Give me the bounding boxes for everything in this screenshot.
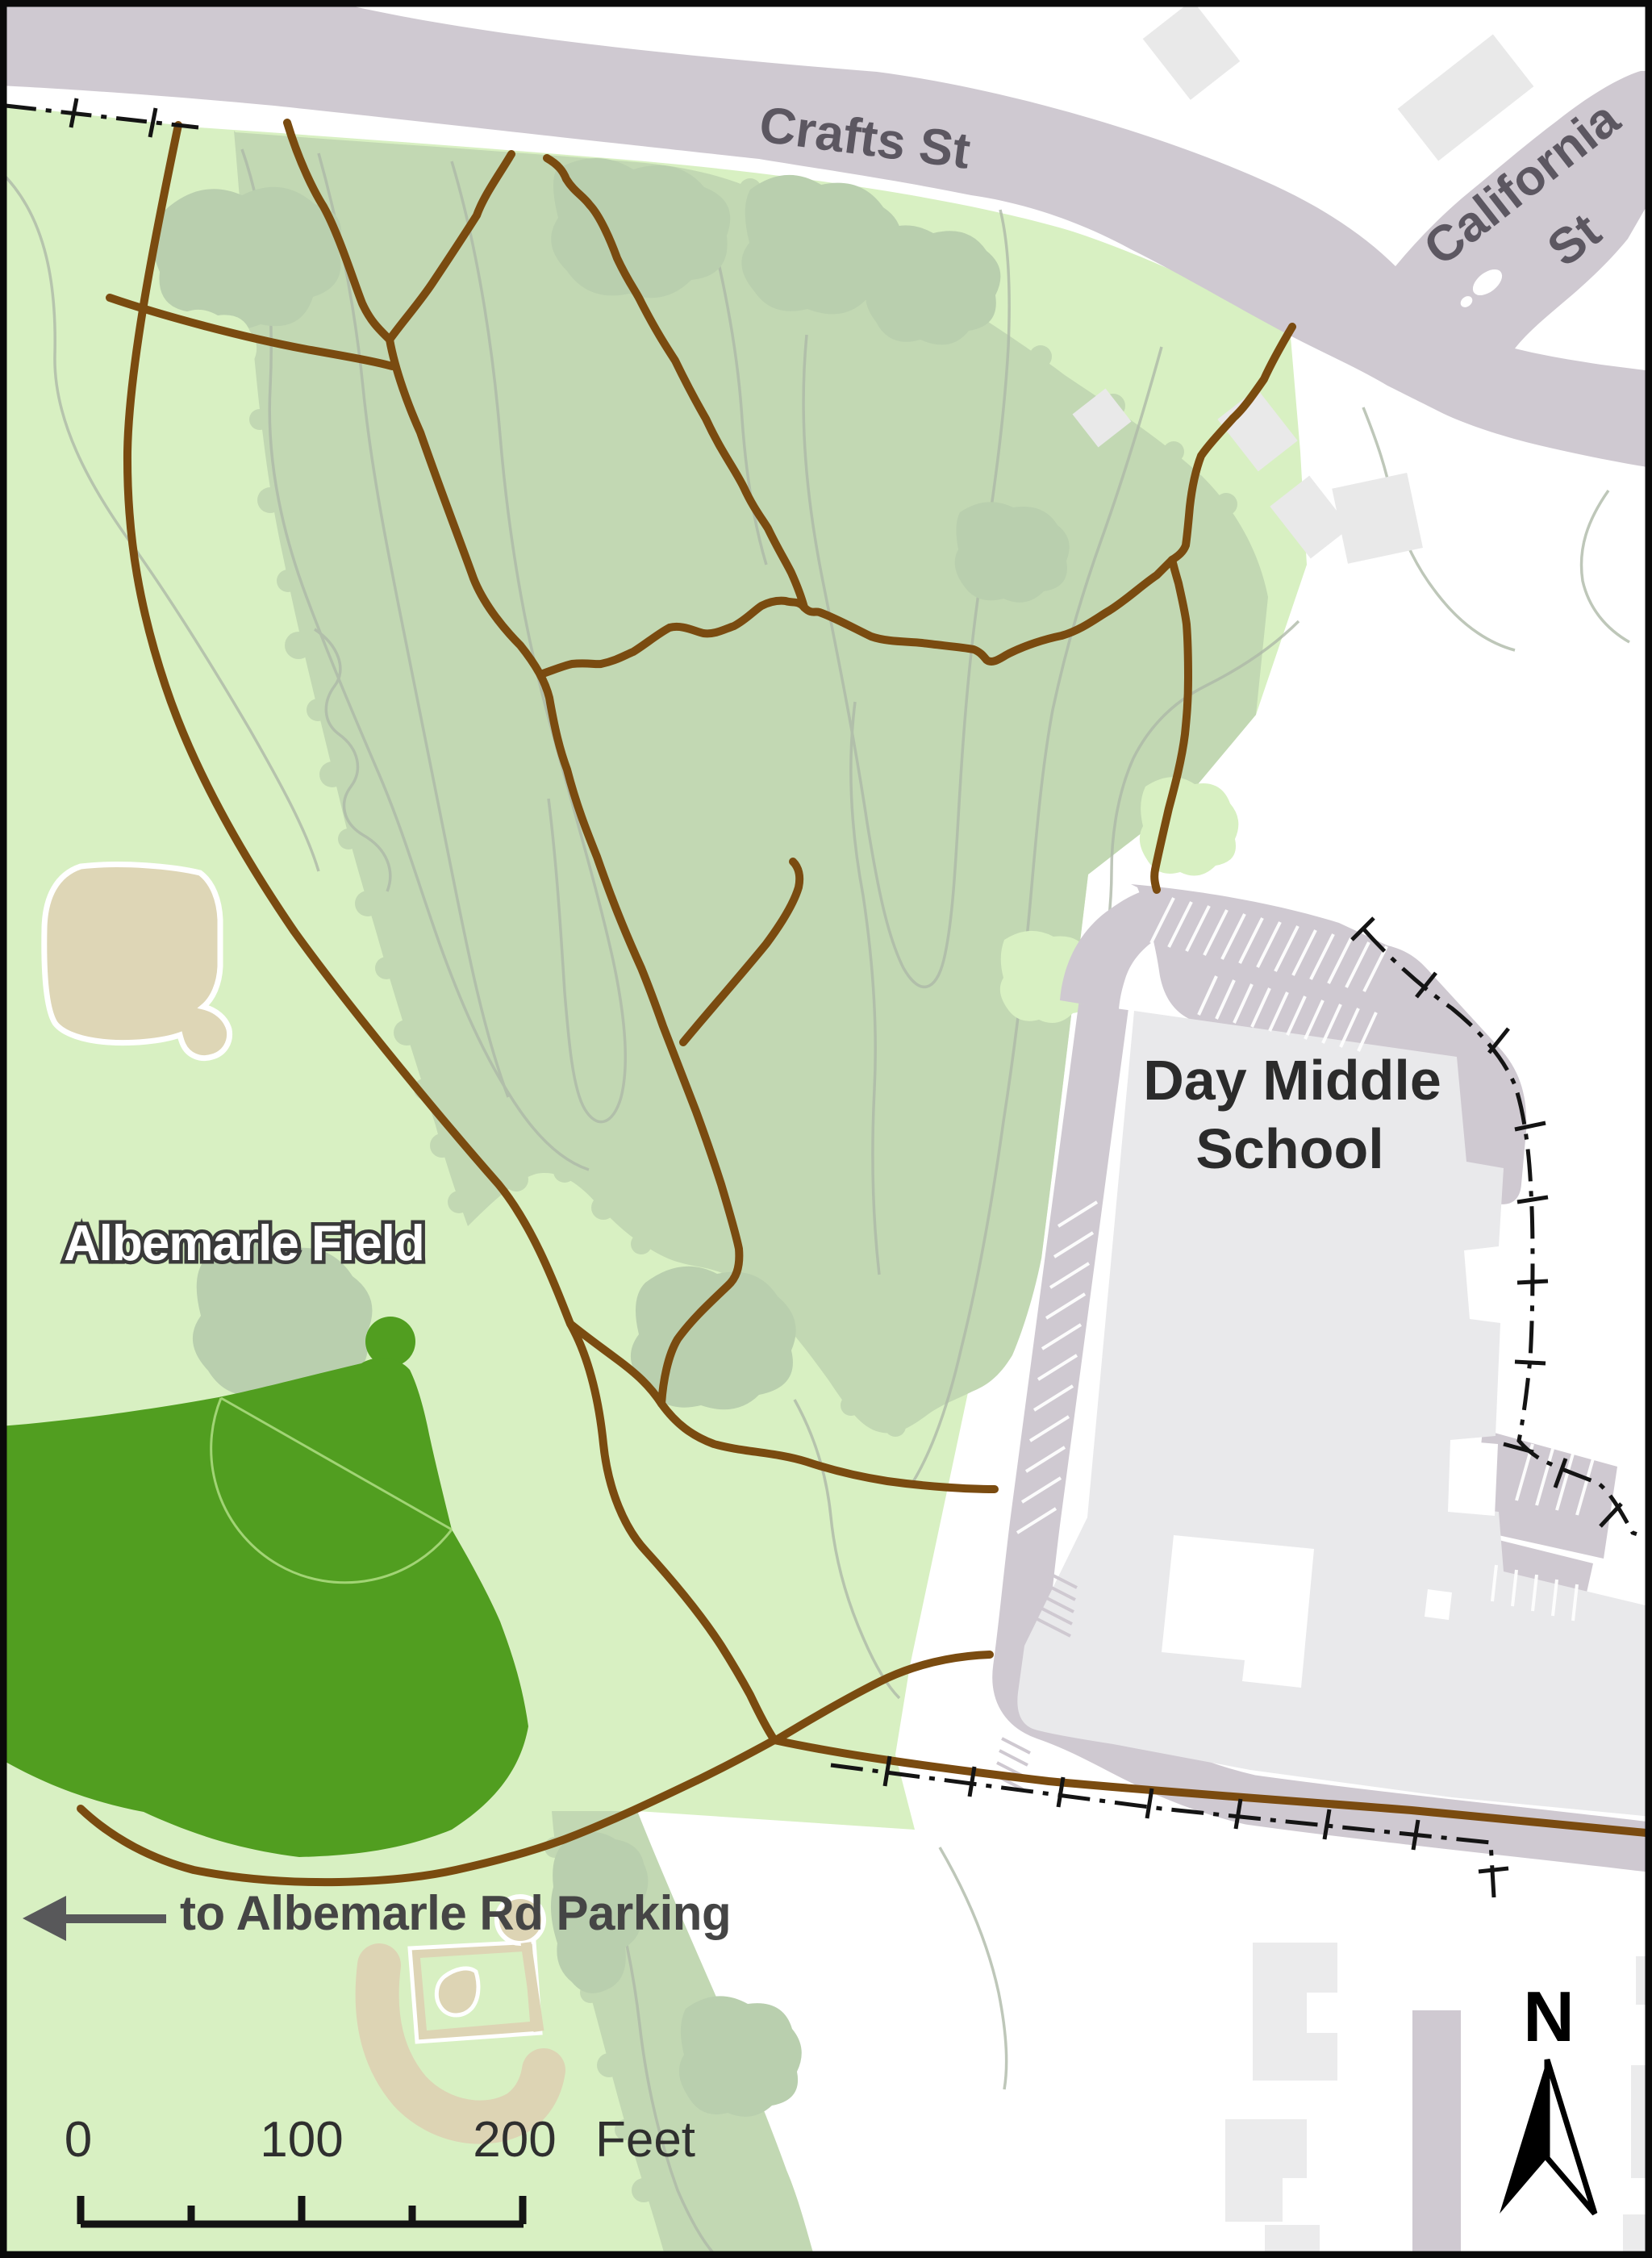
svg-text:School: School [1195, 1117, 1383, 1180]
svg-text:N: N [1523, 1976, 1575, 2056]
svg-text:Feet: Feet [595, 2112, 695, 2168]
svg-text:Day Middle: Day Middle [1143, 1049, 1441, 1112]
svg-text:Albemarle Field: Albemarle Field [64, 1216, 424, 1271]
svg-text:to Albemarle Rd Parking: to Albemarle Rd Parking [180, 1886, 731, 1940]
svg-text:200: 200 [473, 2112, 556, 2168]
svg-text:100: 100 [260, 2112, 343, 2168]
svg-text:0: 0 [65, 2112, 92, 2168]
